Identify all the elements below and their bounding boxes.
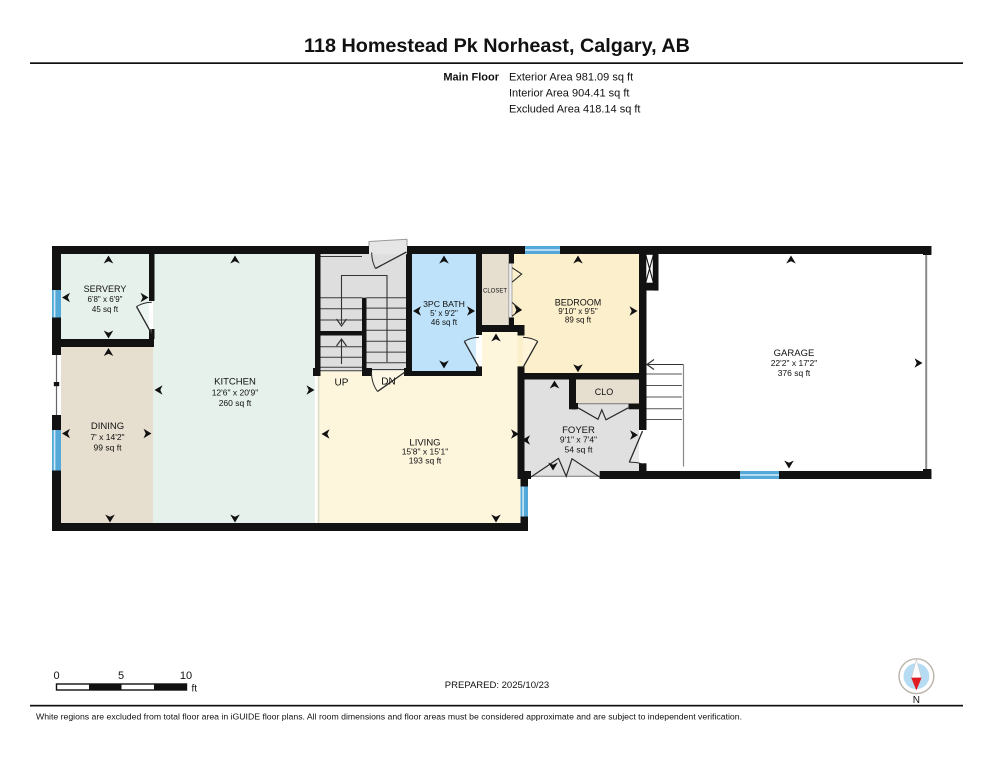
svg-text:54 sq ft: 54 sq ft xyxy=(565,445,594,455)
svg-text:DN: DN xyxy=(381,377,395,388)
svg-text:89 sq ft: 89 sq ft xyxy=(565,316,592,325)
svg-text:99 sq ft: 99 sq ft xyxy=(94,443,123,453)
svg-text:Exterior Area 981.09 sq ft: Exterior Area 981.09 sq ft xyxy=(509,72,633,84)
svg-text:5: 5 xyxy=(118,670,124,682)
svg-text:BEDROOM: BEDROOM xyxy=(555,298,602,308)
svg-text:7' x 14'2": 7' x 14'2" xyxy=(90,432,124,442)
svg-text:6'8" x 6'9": 6'8" x 6'9" xyxy=(88,295,123,304)
svg-text:N: N xyxy=(913,695,920,706)
svg-text:UP: UP xyxy=(335,378,349,389)
svg-text:5' x 9'2": 5' x 9'2" xyxy=(430,309,458,318)
svg-text:46 sq ft: 46 sq ft xyxy=(431,318,458,327)
svg-text:CLO: CLO xyxy=(595,387,614,397)
svg-text:CLOSET: CLOSET xyxy=(483,289,507,295)
svg-text:SERVERY: SERVERY xyxy=(84,284,127,294)
svg-text:Main Floor: Main Floor xyxy=(443,72,499,84)
svg-text:0: 0 xyxy=(53,670,59,682)
svg-text:22'2" x 17'2": 22'2" x 17'2" xyxy=(771,358,818,368)
svg-text:10: 10 xyxy=(180,670,192,682)
svg-text:9'1" x 7'4": 9'1" x 7'4" xyxy=(560,435,597,445)
svg-text:Excluded Area 418.14 sq ft: Excluded Area 418.14 sq ft xyxy=(509,104,640,116)
svg-text:260 sq ft: 260 sq ft xyxy=(219,398,252,408)
svg-text:3PC BATH: 3PC BATH xyxy=(423,299,465,309)
svg-text:DINING: DINING xyxy=(91,421,124,432)
svg-text:ft: ft xyxy=(192,684,198,695)
svg-text:KITCHEN: KITCHEN xyxy=(214,377,256,388)
svg-text:193 sq ft: 193 sq ft xyxy=(409,456,442,466)
svg-text:PREPARED: 2025/10/23: PREPARED: 2025/10/23 xyxy=(445,680,549,691)
svg-text:12'6" x 20'9": 12'6" x 20'9" xyxy=(212,388,259,398)
svg-text:118 Homestead Pk Norheast, Cal: 118 Homestead Pk Norheast, Calgary, AB xyxy=(304,35,690,57)
svg-text:376 sq ft: 376 sq ft xyxy=(778,368,811,378)
svg-text:Interior Area 904.41 sq ft: Interior Area 904.41 sq ft xyxy=(509,88,629,100)
svg-text:White regions are excluded fro: White regions are excluded from total fl… xyxy=(36,712,742,722)
svg-text:45 sq ft: 45 sq ft xyxy=(92,305,119,314)
